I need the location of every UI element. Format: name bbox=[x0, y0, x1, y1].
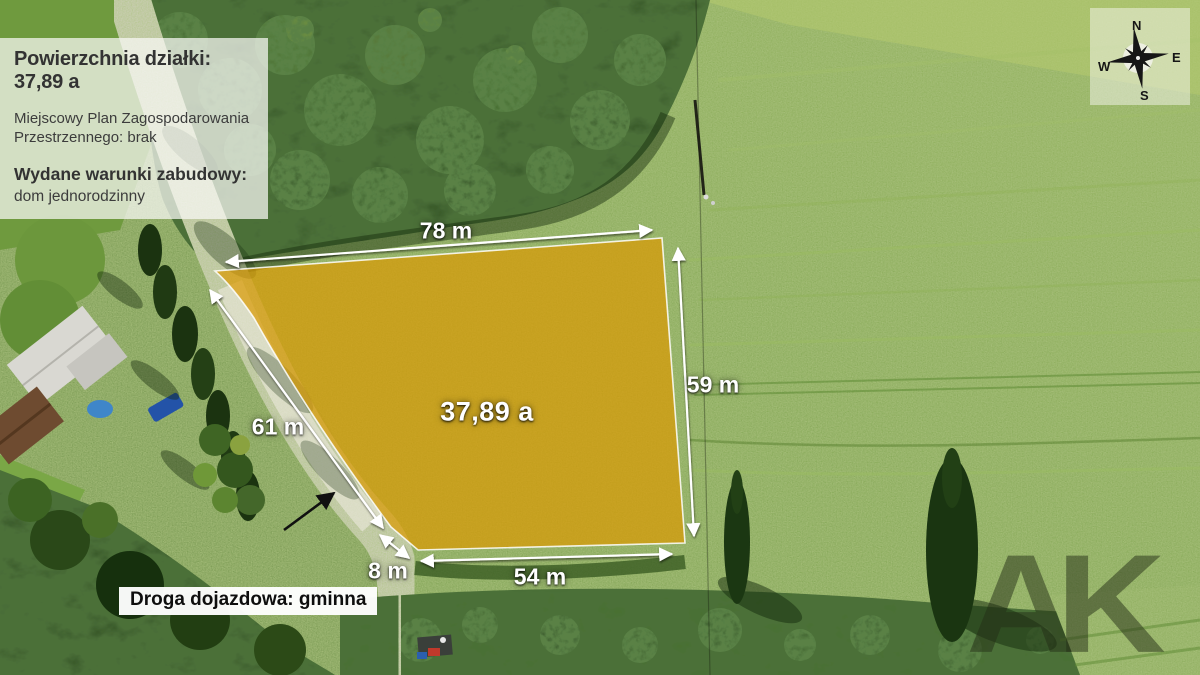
compass-south-label: S bbox=[1140, 88, 1149, 103]
building-permit-heading: Wydane warunki zabudowy: bbox=[14, 164, 254, 185]
measurement-label-bottom: 54 m bbox=[514, 564, 566, 591]
aerial-plot-annotation-scene: 78 m 59 m 61 m 8 m 54 m 37,89 a Powierzc… bbox=[0, 0, 1200, 675]
road-access-label: Droga dojazdowa: gminna bbox=[119, 587, 377, 615]
measurement-label-corner: 8 m bbox=[368, 558, 408, 585]
compass-west-label: W bbox=[1098, 59, 1110, 74]
info-panel: Powierzchnia działki: 37,89 a Miejscowy … bbox=[0, 38, 268, 219]
pool bbox=[87, 400, 113, 418]
watermark-logo: AK bbox=[966, 534, 1146, 674]
compass-rose: N E W S bbox=[1090, 8, 1190, 105]
compass-east-label: E bbox=[1172, 50, 1181, 65]
measurement-label-left: 61 m bbox=[252, 414, 304, 441]
compass-north-label: N bbox=[1132, 18, 1141, 33]
building-permit-value: dom jednorodzinny bbox=[14, 188, 254, 206]
plot-area-label: 37,89 a bbox=[440, 397, 534, 428]
zoning-plan-line-2: Przestrzennego: brak bbox=[14, 128, 254, 147]
measurement-label-right: 59 m bbox=[687, 372, 739, 399]
measurement-label-top: 78 m bbox=[420, 218, 472, 245]
zoning-plan-line-1: Miejscowy Plan Zagospodarowania bbox=[14, 109, 254, 128]
plot-area-title: Powierzchnia działki: 37,89 a bbox=[14, 48, 254, 94]
zoning-plan-text: Miejscowy Plan Zagospodarowania Przestrz… bbox=[14, 109, 254, 147]
